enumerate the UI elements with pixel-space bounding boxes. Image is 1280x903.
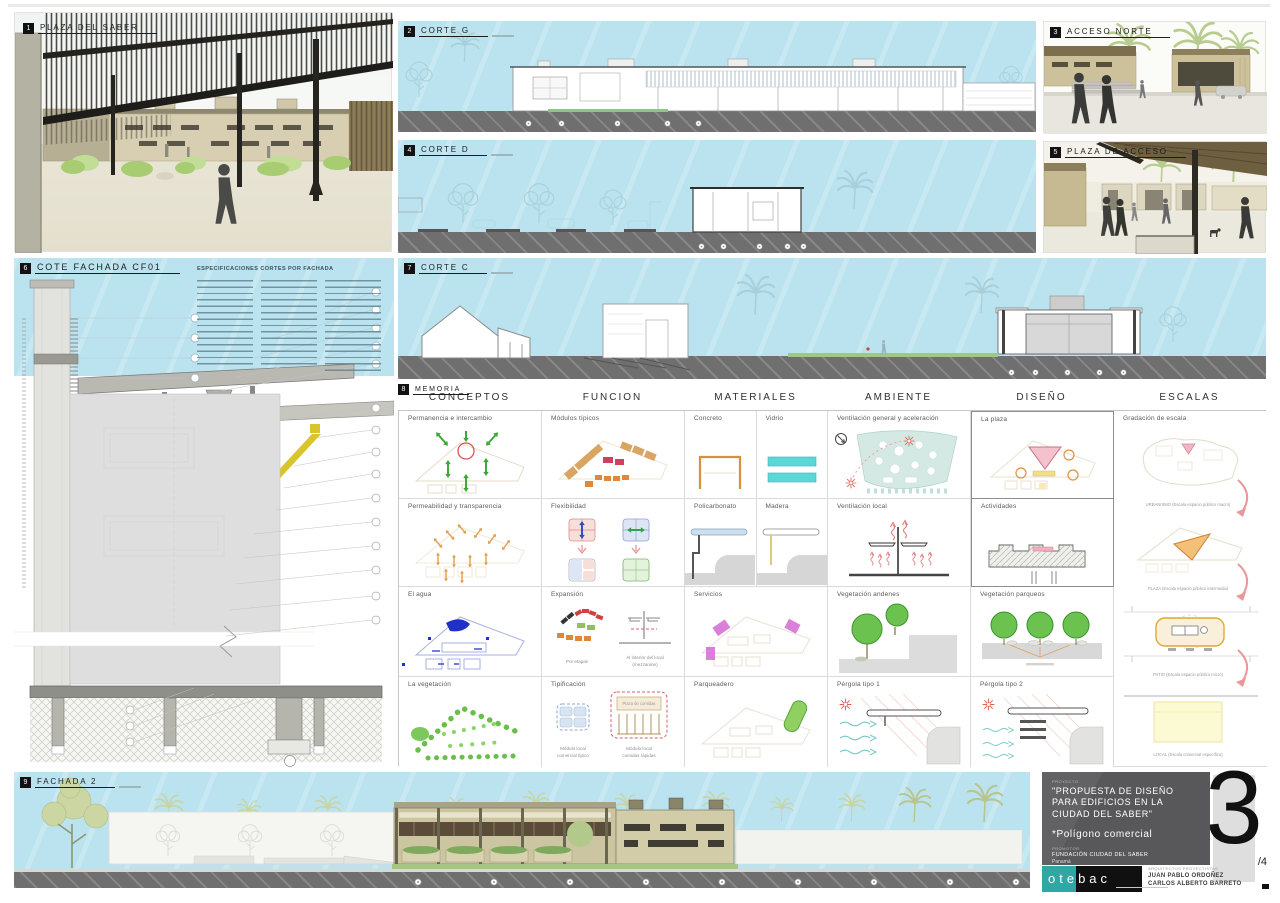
panel-title: COTE FACHADA CF01 (35, 262, 180, 274)
panel-plaza-del-saber: 1PLAZA DEL SABER (14, 12, 392, 252)
sheet-number: 3 (1205, 749, 1263, 868)
cell-label: Pérgola tipo 2 (971, 677, 1113, 688)
panel-title: MEMORIA (413, 386, 469, 395)
panel-title: PLAZA DEL SABER (38, 23, 157, 34)
cell-label: Permanencia e intercambio (399, 411, 541, 422)
column-header: MATERIALES (684, 392, 827, 403)
cell-label: Expansión (542, 587, 684, 598)
scale-note (491, 154, 513, 156)
cell-label: Policarbonato (685, 499, 756, 510)
cell-label: La vegetación (399, 677, 541, 688)
panel-number-badge: 3 (1050, 27, 1061, 38)
panel-corte-c: 7CORTE C (398, 258, 1266, 379)
cell-label: La plaza (972, 412, 1113, 423)
panel-title: PLAZA DE ACCESO (1065, 147, 1186, 158)
cell-label: Parqueadero (685, 677, 827, 688)
project-title: "PROPUESTA DE DISEÑO PARA EDIFICIOS EN L… (1052, 786, 1200, 820)
specs-column-2 (261, 280, 317, 368)
client-location: Panamá (1052, 859, 1200, 865)
elevation-fachada-2 (14, 772, 1030, 894)
memoria-cell-servicios: Servicios (685, 587, 828, 677)
escala-caption: PLAZA (Escala espacio público intermedia… (1147, 586, 1228, 591)
panel-number-badge: 9 (20, 777, 31, 788)
column-header: ESCALAS (1113, 392, 1266, 403)
cell-label: Gradación de escala (1114, 411, 1267, 422)
cell-label: Tipificación (542, 677, 684, 688)
title-block: PROYECTO "PROPUESTA DE DISEÑO PARA EDIFI… (1042, 772, 1210, 865)
cell-label: Permeabilidad y transparencia (399, 499, 541, 510)
section-corte-c (398, 258, 1266, 379)
cell-label: Actividades (972, 499, 1113, 510)
cell-label: Módulos típicos (542, 411, 684, 422)
memoria-cell-vegetacion-andenes: Vegetación andenes (828, 587, 971, 677)
memoria-cell-modulos-tipicos: Módulos típicos (542, 411, 685, 499)
memoria-subcell-madera: Madera (756, 499, 828, 586)
diagram-caption: Por etapas (566, 659, 589, 664)
cell-label: Madera (757, 499, 828, 510)
cell-label: Vegetación parqueos (971, 587, 1113, 598)
memoria-grid: Permanencia e intercambio Módulos típico… (398, 410, 1266, 766)
plaza-comidas-label: Plaza de comidas (622, 701, 655, 706)
column-header: FUNCION (541, 392, 684, 403)
panel-number-badge: 2 (404, 26, 415, 37)
diagram-caption: comidas rápidas (622, 753, 656, 758)
client-label: PROMOTOR (1052, 846, 1200, 851)
panel-number-badge: 1 (23, 23, 34, 34)
sheet-total: /4 (1258, 856, 1267, 868)
memoria-cell-escalas: Gradación de escala URBANISMO (Escala es… (1114, 411, 1267, 767)
cell-label: Servicios (685, 587, 827, 598)
render-plaza-de-acceso (1044, 142, 1267, 254)
render-plaza-del-saber (15, 13, 393, 253)
panel-number-badge: 6 (20, 263, 31, 274)
cell-label: Ventilación local (828, 499, 970, 510)
cell-label: Vidrio (757, 411, 828, 422)
memoria-subcell-policarbonato: Policarbonato (685, 499, 756, 586)
render-acceso-norte (1044, 22, 1267, 134)
panel-acceso-norte: 3ACCESO NORTE (1043, 21, 1266, 133)
specs-column-1 (197, 280, 253, 368)
memoria-cell-flexibilidad: Flexibilidad (542, 499, 685, 587)
memoria-cell-la-plaza: La plaza (971, 411, 1114, 499)
memoria-cell-ventilacion-local: Ventilación local (828, 499, 971, 587)
column-header: DISEÑO (970, 392, 1113, 403)
panel-number-badge: 4 (404, 145, 415, 156)
memoria-cell-actividades: Actividades (971, 499, 1114, 587)
memoria-cell-pergola-1: Pérgola tipo 1 (828, 677, 971, 767)
memoria-cell-el-agua: El agua (399, 587, 542, 677)
escala-caption: PATIO (Escala espacio público micro) (1153, 672, 1223, 677)
panel-plaza-de-acceso: 5PLAZA DE ACCESO (1043, 141, 1266, 253)
memoria-cell-la-vegetacion: La vegetación (399, 677, 542, 767)
client-name: FUNDACIÓN CIUDAD DEL SABER (1052, 852, 1200, 858)
memoria-subcell-concreto: Concreto (685, 411, 756, 498)
memoria-cell-pergola-2: Pérgola tipo 2 (971, 677, 1114, 767)
panel-corte-d: 4CORTE D (398, 140, 1036, 253)
cell-label: Ventilación general y aceleración (828, 411, 970, 422)
specs-column-3 (325, 280, 381, 372)
presentation-board: 1PLAZA DEL SABER 2CORTE G (0, 0, 1280, 903)
memoria-cell-permanencia: Permanencia e intercambio (399, 411, 542, 499)
memoria-cell-vegetacion-parqueos: Vegetación parqueos (971, 587, 1114, 677)
diagram-caption: Al interior del local (626, 655, 664, 660)
cell-label: Flexibilidad (542, 499, 684, 510)
panel-number-badge: 7 (404, 263, 415, 274)
architects-block: ARQUITECTOS PROYECTISTAS JUAN PABLO ORDO… (1148, 866, 1242, 887)
board-edge (8, 4, 1270, 7)
logo-text: otebac (1048, 871, 1111, 886)
project-subtitle: *Polígono comercial (1052, 829, 1200, 840)
column-header: AMBIENTE (827, 392, 970, 403)
project-label: PROYECTO (1052, 779, 1200, 784)
memoria-cell-tipificacion: Tipificación Módulo local comercial típi… (542, 677, 685, 767)
panel-corte-g: 2CORTE G (398, 21, 1036, 132)
memoria-cell-parqueadero: Parqueadero (685, 677, 828, 767)
panel-memoria: 8MEMORIA CONCEPTOS FUNCION MATERIALES AM… (398, 384, 1266, 766)
section-corte-g (398, 21, 1036, 132)
memoria-column-headers: CONCEPTOS FUNCION MATERIALES AMBIENTE DI… (398, 392, 1266, 403)
diagram-caption: Módulo local (626, 746, 652, 751)
cell-label: Concreto (685, 411, 756, 422)
memoria-cell-permeabilidad: Permeabilidad y transparencia (399, 499, 542, 587)
panel-cote-fachada-cf01: 6COTE FACHADA CF01 ESPECIFICACIONES CORT… (14, 258, 394, 768)
cell-label: Vegetación andenes (828, 587, 970, 598)
panel-number-badge: 8 (398, 384, 409, 395)
specs-title: ESPECIFICACIONES CORTES POR FACHADA (197, 266, 333, 272)
escala-caption: URBANISMO (Escala espacio público macro) (1145, 502, 1230, 507)
memoria-cell-expansion: Expansión Por etapas Al interior del loc… (542, 587, 685, 677)
panel-title: FACHADA 2 (35, 777, 115, 788)
memoria-cell-ventilacion-general: Ventilación general y aceleración (828, 411, 971, 499)
panel-title: CORTE D (419, 145, 487, 156)
scale-note (492, 35, 514, 37)
panel-title: CORTE C (419, 263, 487, 274)
panel-fachada-2: 9FACHADA 2 (14, 772, 1030, 894)
panel-title: ACCESO NORTE (1065, 27, 1170, 38)
cell-label: Pérgola tipo 1 (828, 677, 970, 688)
architect-name-1: JUAN PABLO ORDOÑEZ (1148, 873, 1242, 879)
memoria-subcell-vidrio: Vidrio (756, 411, 828, 498)
architect-name-2: CARLOS ALBERTO BARRETO (1148, 881, 1242, 887)
otebac-logo: otebac (1042, 866, 1142, 892)
scale-note (119, 786, 141, 788)
diagram-caption: comercial típico (557, 753, 589, 758)
memoria-cell-materiales-2: Policarbonato Madera (685, 499, 828, 587)
cell-label: El agua (399, 587, 541, 598)
corner-mark (1262, 884, 1269, 889)
memoria-cell-materiales-1: Concreto Vidrio (685, 411, 828, 499)
architects-label: ARQUITECTOS PROYECTISTAS (1148, 866, 1242, 871)
panel-number-badge: 5 (1050, 147, 1061, 158)
panel-title: CORTE G (419, 26, 488, 37)
scale-note (491, 272, 513, 274)
section-corte-d (398, 140, 1036, 253)
diagram-caption: Módulo local (560, 746, 586, 751)
diagram-caption: (mezzanine) (632, 662, 658, 667)
